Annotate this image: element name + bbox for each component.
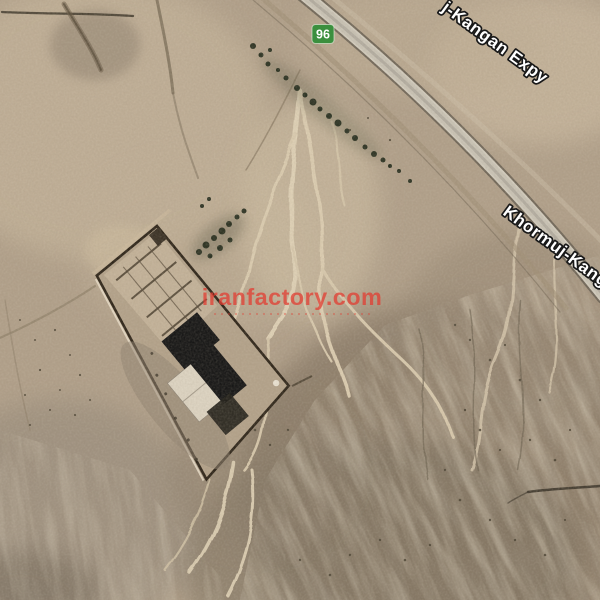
satellite-map[interactable]: 96 j-Kangan Expy Khormuj-Kang iranfactor… <box>0 0 600 600</box>
satellite-map-canvas[interactable]: 96 j-Kangan Expy Khormuj-Kang iranfactor… <box>0 0 600 600</box>
route-shield[interactable]: 96 <box>312 25 334 44</box>
route-shield-number: 96 <box>316 28 330 42</box>
watermark-text: iranfactory.com <box>202 284 383 310</box>
